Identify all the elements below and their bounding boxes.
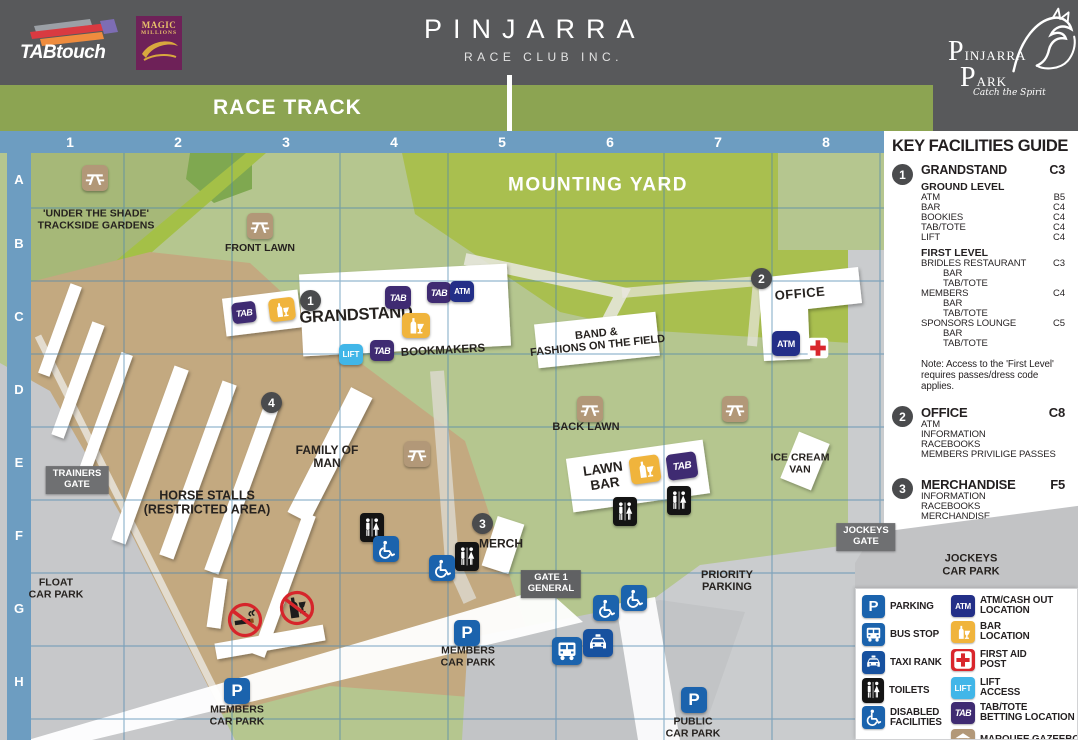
grid-column-label: 3	[276, 134, 296, 150]
taxi-rank-icon	[862, 651, 885, 674]
first-aid-icon	[805, 335, 831, 361]
members-car-park-label: MEMBERSCAR PARK	[441, 645, 496, 668]
grid-ruler-top: 1 2 3 4 5 6 7 8	[0, 131, 884, 153]
facility-badge-1: 1	[892, 164, 913, 185]
picnic-table-icon	[82, 165, 108, 191]
club-subtitle: RACE CLUB INC.	[464, 50, 623, 64]
horse-stalls-label: HORSE STALLS(RESTRICTED AREA)	[144, 489, 271, 517]
disabled-facilities-icon	[429, 555, 455, 581]
bar-icon	[402, 313, 430, 338]
toilets-icon	[455, 542, 479, 571]
legend-toilets: TOILETS	[862, 678, 930, 703]
tabtouch-logo: TABtouch	[20, 42, 105, 64]
pinjarra-park-logo: PINJARRA PARK Catch the Spirit	[933, 0, 1078, 131]
legend-bar: BARLOCATION	[951, 621, 1030, 643]
legend-disabled: DISABLEDFACILITIES	[862, 706, 942, 729]
first-level-note: Note: Access to the 'First Level' requir…	[921, 360, 1070, 392]
priority-parking-label: PRIORITYPARKING	[701, 569, 753, 593]
pinjarra-race-club-map: TABtouch MAGIC MILLIONS PINJARRA RACE CL…	[0, 0, 1078, 740]
magic-millions-logo: MAGIC MILLIONS	[136, 16, 182, 70]
race-track-label: RACE TRACK	[213, 96, 362, 120]
taxi-rank-icon	[583, 629, 613, 657]
grid-row-label: B	[7, 236, 31, 251]
magic-millions-horse-icon	[136, 36, 182, 64]
tab-tote-icon: TAB	[231, 301, 257, 325]
map-legend: P PARKING BUS STOP TAXI RANK TOILETS DIS…	[855, 588, 1078, 740]
panel-title: KEY FACILITIES GUIDE	[892, 137, 1070, 156]
grid-row-label: H	[7, 674, 31, 689]
parking-icon: P	[454, 620, 480, 646]
ice-cream-van-label: ICE CREAMVAN	[771, 452, 830, 475]
legend-atm: ATM ATM/CASH OUTLOCATION	[951, 595, 1053, 617]
map-badge-2-office: 2	[751, 268, 772, 289]
front-lawn-label: FRONT LAWN	[225, 243, 295, 255]
legend-tab-tote: TAB TAB/TOTEBETTING LOCATION	[951, 702, 1075, 724]
merch-label: MERCH	[479, 537, 523, 550]
tab-tote-icon: TAB	[665, 451, 698, 481]
under-the-shade-label: 'UNDER THE SHADE'TRACKSIDE GARDENS	[38, 208, 155, 231]
legend-marquee: MARQUEE.GAZEEBO	[951, 729, 1078, 740]
bar-icon	[951, 621, 975, 643]
family-of-man-label: FAMILY OFMAN	[296, 444, 359, 470]
magic-millions-text: MAGIC	[136, 20, 182, 30]
grid-column-label: 2	[168, 134, 188, 150]
bus-stop-icon	[552, 637, 582, 665]
grid-column-label: 6	[600, 134, 620, 150]
jockeys-car-park-label: JOCKEYSCAR PARK	[942, 552, 999, 577]
grid-ref: C3	[1049, 163, 1070, 177]
parking-icon: P	[681, 687, 707, 713]
atm-icon: ATM	[772, 331, 800, 356]
grid-column-label: 1	[60, 134, 80, 150]
facility-badge-3: 3	[892, 478, 913, 499]
tab-tote-icon: TAB	[951, 702, 975, 724]
grid-column-label: 5	[492, 134, 512, 150]
toilets-icon	[667, 486, 691, 515]
public-car-park-label: PUBLICCAR PARK	[666, 716, 721, 739]
marquee-gazebo-icon	[951, 729, 975, 740]
grid-row-label: F	[7, 528, 31, 543]
finish-line	[507, 75, 512, 131]
picnic-table-icon	[404, 441, 430, 467]
club-title: PINJARRA	[424, 14, 646, 45]
toilets-icon	[862, 678, 884, 703]
bar-icon	[268, 297, 297, 323]
no-alcohol-icon	[276, 587, 319, 630]
parking-icon: P	[862, 595, 885, 618]
float-car-park-label: FLOATCAR PARK	[29, 577, 84, 600]
legend-lift: LIFT LIFTACCESS	[951, 677, 1020, 699]
legend-first-aid: FIRST AIDPOST	[951, 649, 1027, 671]
lawn-bar-label: LAWNBAR	[582, 460, 625, 495]
map-badge-4-family-of-man: 4	[261, 392, 282, 413]
grid-row-label: E	[7, 455, 31, 470]
disabled-facilities-icon	[593, 595, 619, 621]
trainers-gate-badge: TRAINERSGATE	[46, 466, 109, 494]
tab-tote-icon: TAB	[385, 286, 411, 309]
lift-icon: LIFT	[951, 677, 975, 699]
parking-icon: P	[224, 678, 250, 704]
grid-row-label: A	[7, 172, 31, 187]
gate1-general-badge: GATE 1GENERAL	[521, 570, 581, 598]
toilets-icon	[613, 497, 637, 526]
facility-badge-2: 2	[892, 406, 913, 427]
disabled-facilities-icon	[621, 585, 647, 611]
first-aid-icon	[951, 649, 975, 671]
bus-stop-icon	[862, 623, 885, 646]
grid-row-label: D	[7, 382, 31, 397]
map-badge-3-merch: 3	[472, 513, 493, 534]
picnic-table-icon	[247, 213, 273, 239]
no-smoking-icon	[224, 599, 267, 642]
grid-row-label: C	[7, 309, 31, 324]
facility-office: 2 OFFICEC8 ATM INFORMATION RACEBOOKS MEM…	[892, 405, 1070, 460]
legend-taxi-rank: TAXI RANK	[862, 651, 942, 674]
facility-grandstand: 1 GRANDSTANDC3 GROUND LEVEL ATMB5 BARC4 …	[892, 163, 1070, 392]
park-logo-tagline: Catch the Spirit	[973, 88, 1046, 98]
legend-parking: P PARKING	[862, 595, 934, 618]
mounting-yard-label: MOUNTING YARD	[508, 176, 688, 197]
facility-name: GRANDSTAND	[921, 163, 1007, 177]
members-car-park-label: MEMBERSCAR PARK	[210, 704, 265, 727]
grid-column-label: 7	[708, 134, 728, 150]
back-lawn-label: BACK LAWN	[552, 421, 619, 433]
map-badge-1-grandstand: 1	[300, 290, 321, 311]
header-bar: TABtouch MAGIC MILLIONS PINJARRA RACE CL…	[0, 0, 1078, 85]
grid-row-label: G	[7, 601, 31, 616]
atm-icon: ATM	[951, 595, 975, 617]
atm-icon: ATM	[450, 281, 474, 302]
picnic-table-icon	[577, 396, 603, 422]
disabled-facilities-icon	[862, 706, 885, 729]
disabled-facilities-icon	[373, 536, 399, 562]
tab-tote-icon: TAB	[427, 282, 451, 303]
race-track-banner	[0, 85, 933, 131]
grid-column-label: 8	[816, 134, 836, 150]
picnic-table-icon	[722, 396, 748, 422]
jockeys-gate-badge: JOCKEYSGATE	[836, 523, 895, 551]
legend-bus-stop: BUS STOP	[862, 623, 939, 646]
grid-ruler-left: A B C D E F G H	[7, 153, 31, 740]
tab-tote-icon: TAB	[370, 340, 394, 361]
grid-column-label: 4	[384, 134, 404, 150]
lift-icon: LIFT	[339, 344, 363, 365]
bar-icon	[628, 454, 661, 485]
